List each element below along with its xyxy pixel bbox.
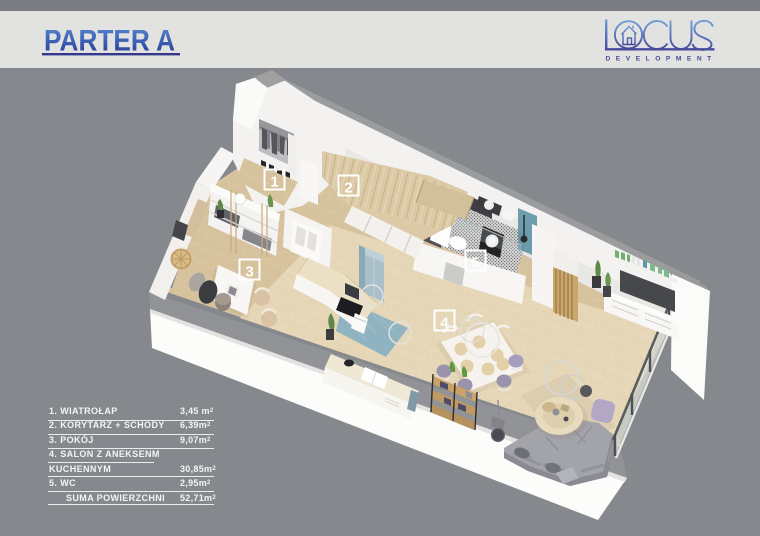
svg-text:3: 3 (245, 264, 253, 281)
svg-text:DEVELOPMENT: DEVELOPMENT (606, 56, 717, 63)
svg-text:1: 1 (270, 174, 278, 191)
svg-text:2: 2 (344, 180, 352, 197)
svg-text:4: 4 (440, 315, 449, 332)
svg-text:5: 5 (471, 255, 479, 272)
svg-text:PARTER A: PARTER A (44, 24, 175, 57)
